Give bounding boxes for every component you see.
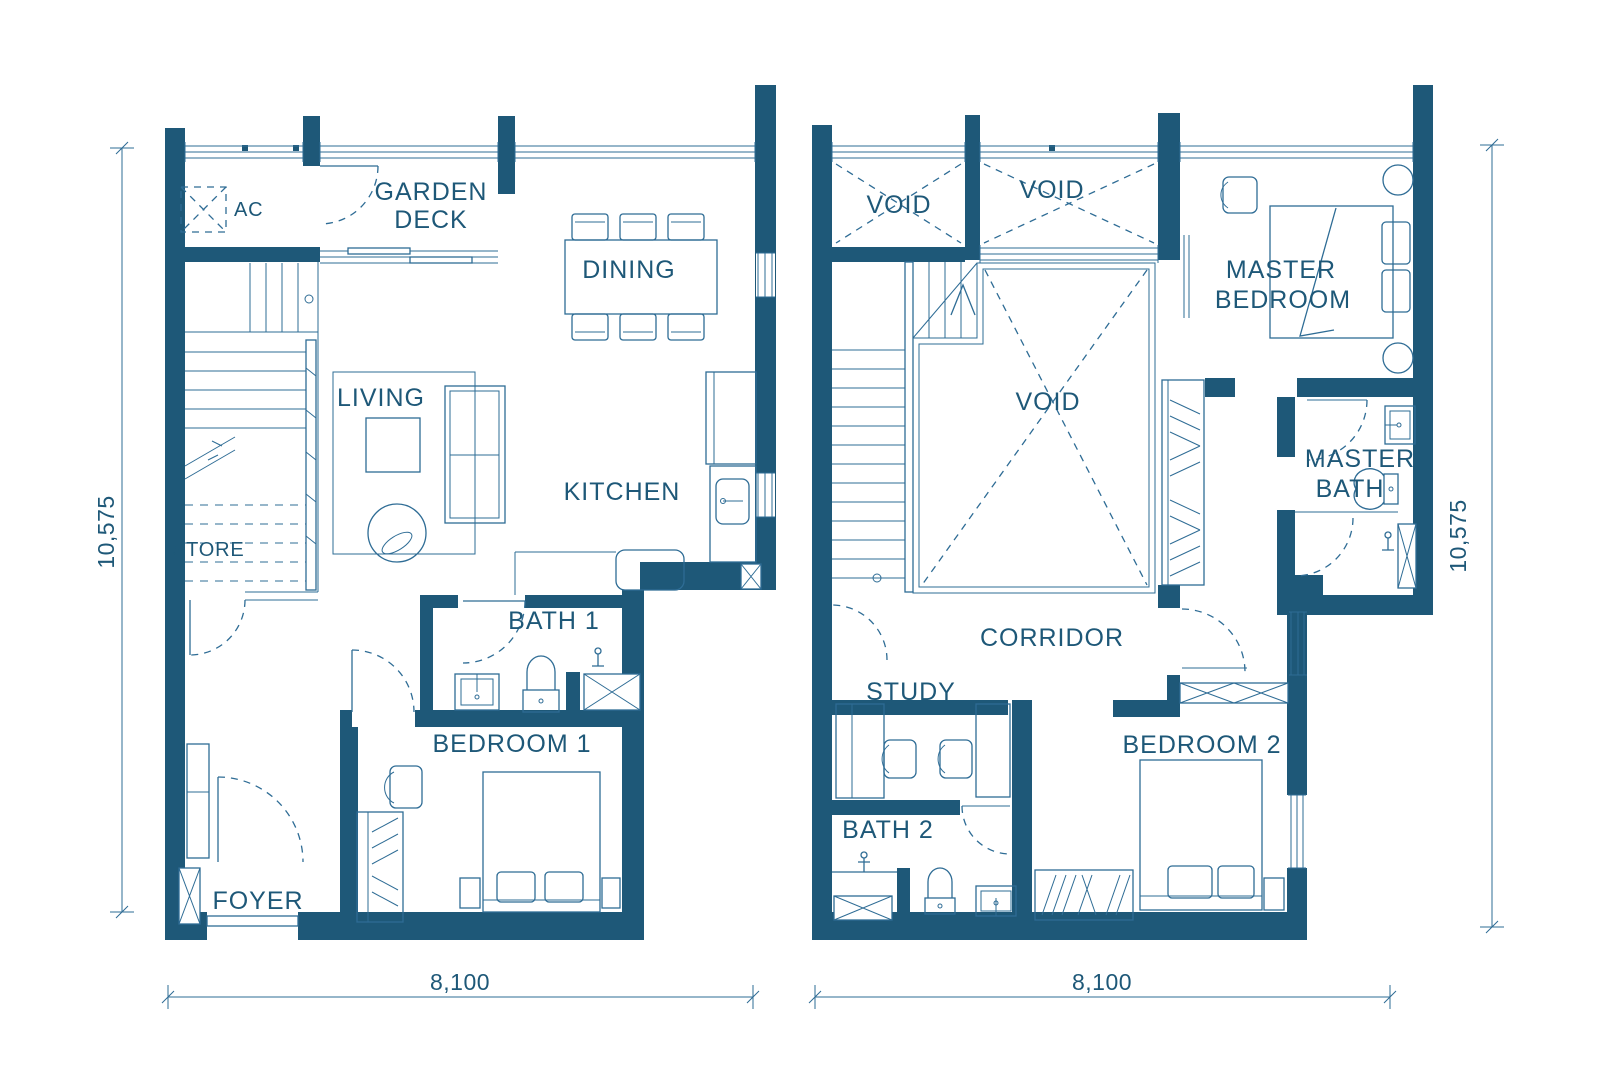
study-furniture [836,704,1010,798]
study-closet [836,704,884,798]
side-table [602,878,620,908]
bedroom2-furniture [1035,760,1284,920]
room-label-garden-deck-1: GARDEN [375,178,488,206]
ac-ledge [1180,683,1288,703]
ac-ledge [181,187,226,232]
staircase-lower [185,262,318,655]
room-label-living: LIVING [337,384,425,412]
desk-chair [882,740,916,778]
room-label-master-bedroom-1: MASTER [1226,256,1336,284]
shower-head [592,654,604,666]
room-label-dining: DINING [582,256,676,284]
room-label-corridor: CORRIDOR [980,624,1124,652]
room-label-study: STUDY [866,678,956,706]
toilet [925,868,955,914]
pillow [1168,866,1212,898]
room-label-kitchen: KITCHEN [564,478,681,506]
dim-label-upper-width: 8,100 [1072,969,1132,995]
coffee-table [366,418,420,472]
foyer-closet [187,744,209,858]
pillow [545,872,583,902]
pillow [1382,270,1410,312]
room-label-master-bath-2: BATH [1316,475,1385,503]
room-label-ac: AC [234,199,263,221]
pillow [497,872,535,902]
desk-chair [938,740,972,778]
bed [1140,760,1262,910]
dim-upper-height [1480,139,1504,933]
armchair [385,766,422,808]
staircase-upper [832,262,977,592]
sliding-door [1184,235,1189,318]
side-table [1383,165,1413,195]
entry-threshold [207,916,298,926]
wardrobe [357,812,403,922]
dim-label-upper-height: 10,575 [1445,499,1471,572]
round-chair [368,504,426,562]
wardrobe [1162,380,1204,585]
room-label-void3: VOID [1015,388,1080,416]
dim-label-lower-height: 10,575 [93,495,119,568]
pillow [1382,222,1410,264]
room-label-bedroom1: BEDROOM 1 [432,730,591,758]
room-label-foyer: FOYER [212,887,303,915]
side-table [1264,878,1284,910]
room-label-void2: VOID [1019,176,1084,204]
faucet [858,858,870,872]
room-label-garden-deck-2: DECK [394,206,467,234]
side-table [1383,343,1413,373]
shower-head [1382,538,1394,550]
floorplan-canvas: AC GARDEN DECK DINING LIVING KITCHEN STO… [0,0,1600,1080]
armchair [1221,177,1257,213]
void-center [913,263,1155,593]
sink [976,886,1016,916]
room-label-master-bath-1: MASTER [1305,445,1415,473]
upper-floor-plan: VOID VOID VOID MASTER BEDROOM MASTER BAT… [812,85,1433,940]
side-table [460,878,480,908]
toilet [523,656,559,712]
room-label-void1: VOID [866,191,931,219]
room-label-bath1: BATH 1 [508,607,600,635]
room-label-bedroom2: BEDROOM 2 [1122,731,1281,759]
lower-floor-plan: AC GARDEN DECK DINING LIVING KITCHEN STO… [165,85,776,940]
dim-label-lower-width: 8,100 [430,969,490,995]
room-label-store: STORE [172,539,245,561]
pillow [1218,866,1254,898]
floorplan-page: AC GARDEN DECK DINING LIVING KITCHEN STO… [0,0,1600,1080]
room-label-master-bedroom-2: BEDROOM [1215,286,1351,314]
desk [976,704,1010,797]
room-label-bath2: BATH 2 [842,816,934,844]
